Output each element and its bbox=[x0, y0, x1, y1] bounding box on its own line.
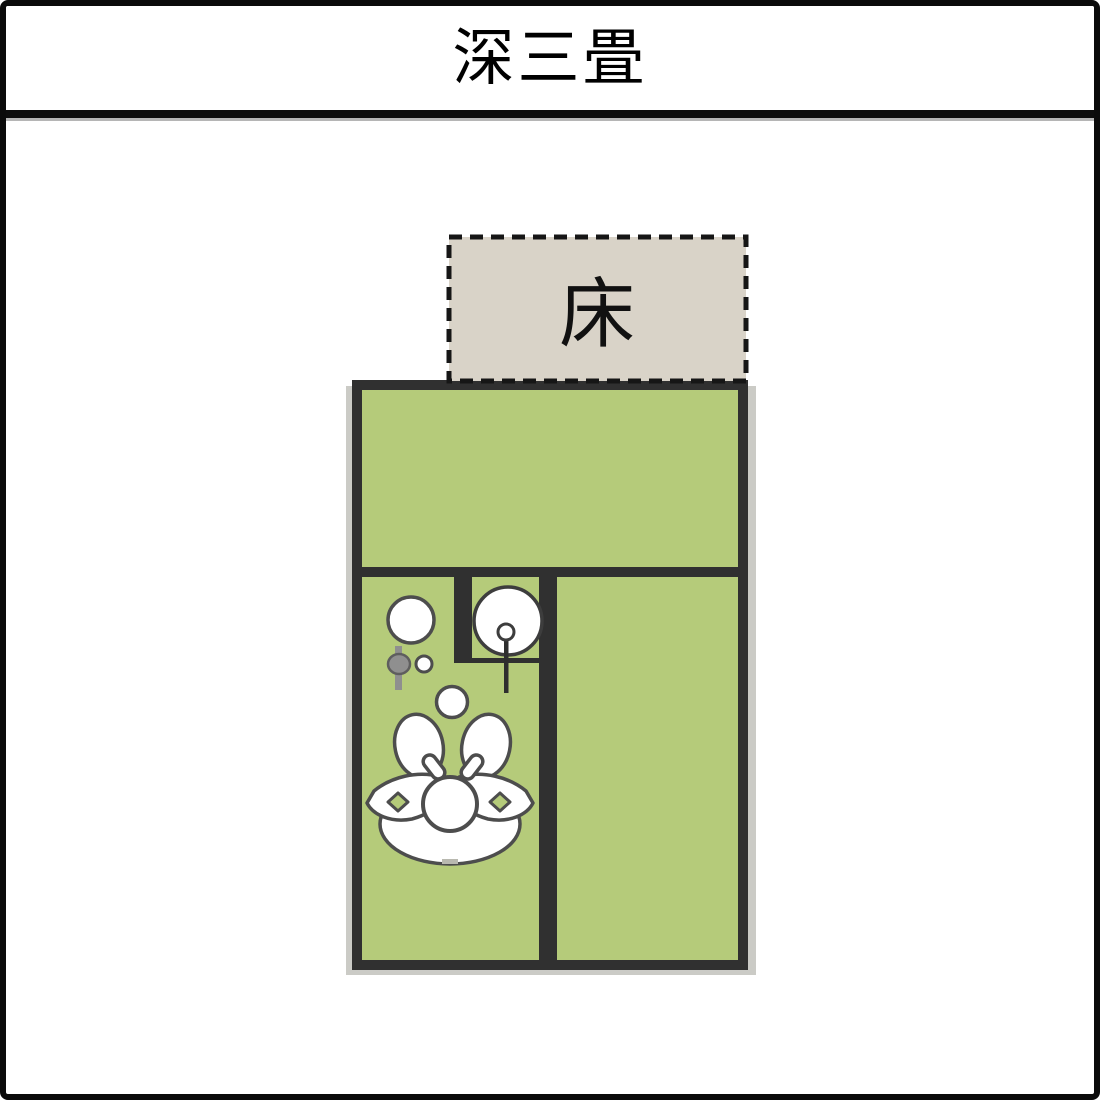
tea-room-layout-card: 床 深三畳 bbox=[0, 0, 1100, 1100]
host-head bbox=[423, 777, 477, 831]
lid-rest bbox=[416, 656, 432, 672]
host-torso-mark bbox=[442, 859, 458, 864]
ladle-cup-on-kettle bbox=[498, 624, 514, 640]
tatami-mat-top bbox=[357, 385, 743, 572]
hishaku-cup bbox=[388, 654, 410, 674]
tatami-mat-guest bbox=[552, 572, 743, 965]
ladle-handle-on-kettle bbox=[504, 636, 509, 693]
toko-label: 床 bbox=[559, 270, 635, 359]
page-title: 深三畳 bbox=[452, 27, 647, 89]
hearth-bottom-wall bbox=[468, 658, 553, 663]
hearth-left-wall bbox=[454, 567, 472, 663]
title-bar: 深三畳 bbox=[6, 6, 1094, 118]
tea-bowl bbox=[437, 687, 468, 718]
floor-plan: 床 bbox=[0, 0, 1100, 1100]
water-jar bbox=[388, 597, 434, 643]
